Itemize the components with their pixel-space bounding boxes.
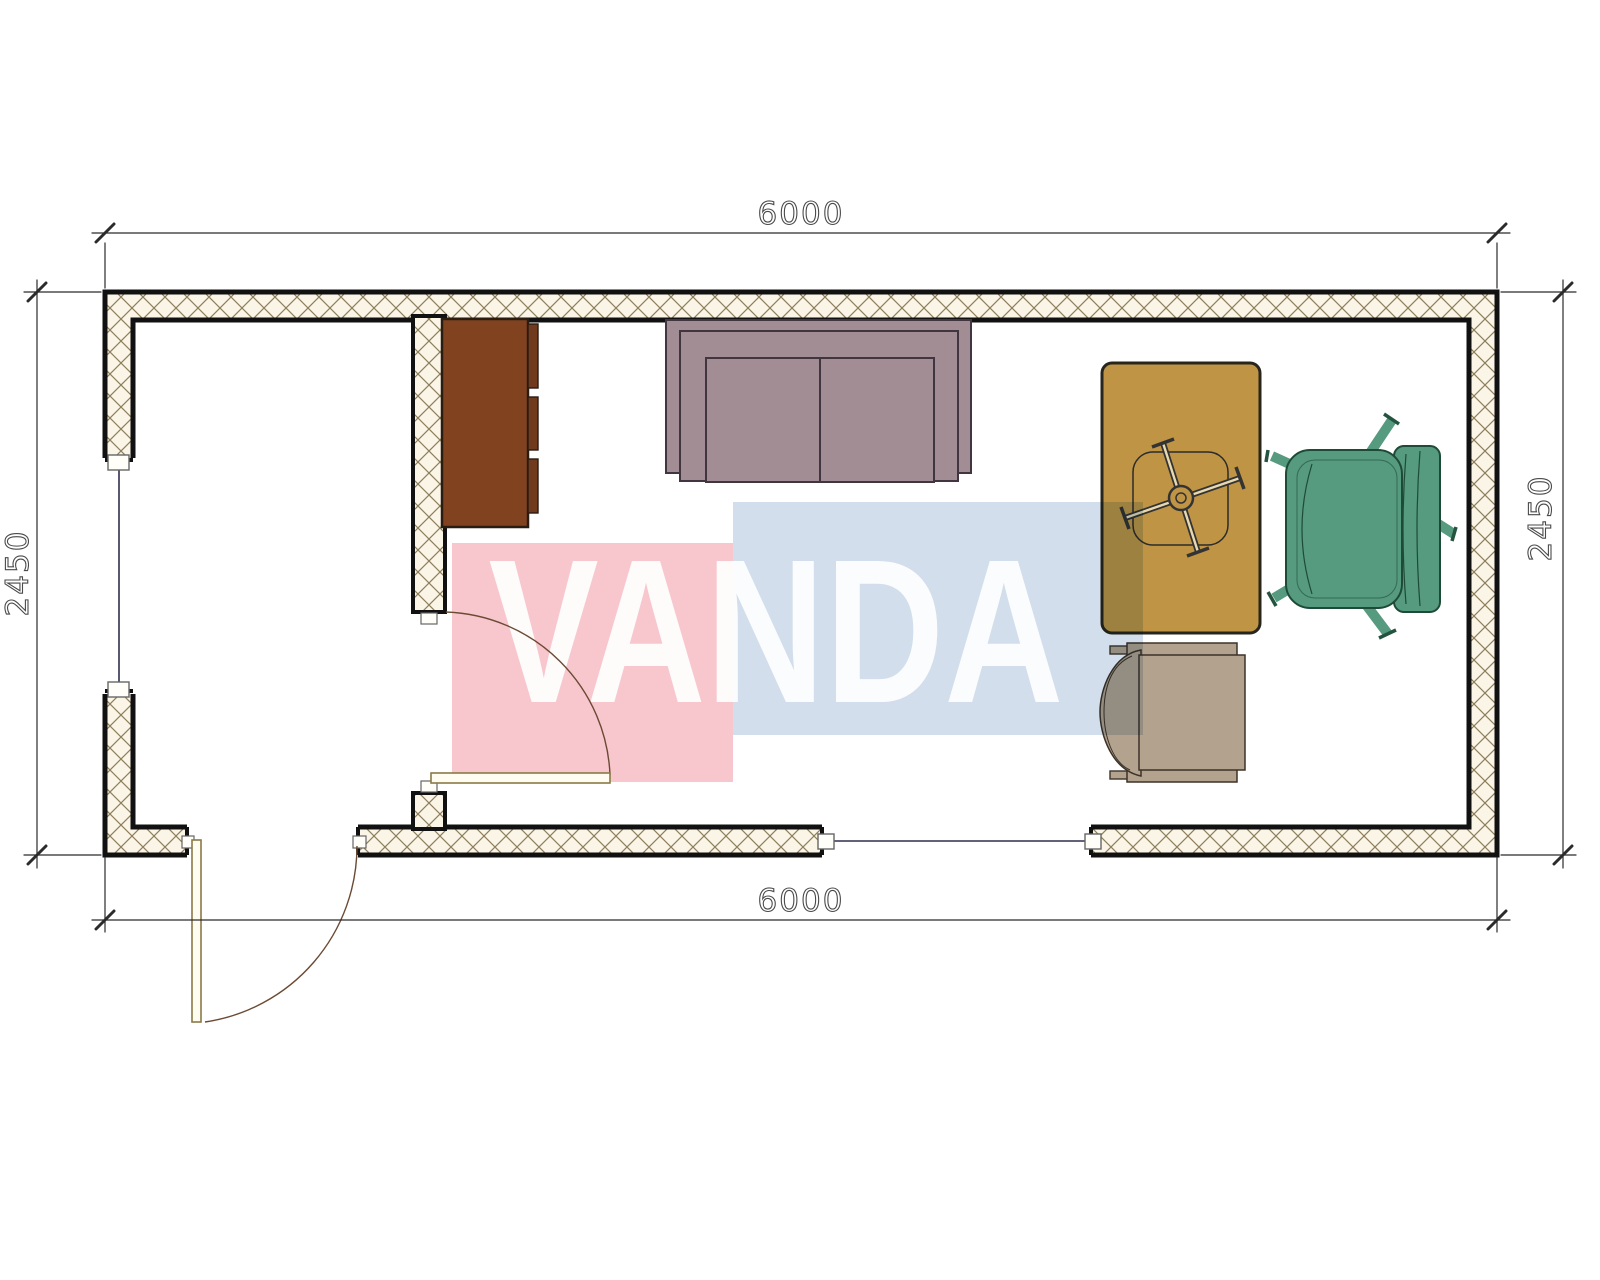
task-chair-hub xyxy=(1169,486,1193,510)
interior-door-jamb-top xyxy=(421,613,437,624)
left-window-opening xyxy=(98,458,136,694)
dimension-right-lines xyxy=(1501,280,1576,868)
dimension-right-label: 2450 xyxy=(1523,475,1559,562)
side-chair-seat xyxy=(1139,655,1245,770)
floor-plan-canvas: VANDA 6000 6000 2450 245 xyxy=(0,0,1600,1280)
dimension-top-label: 6000 xyxy=(758,196,845,232)
cabinet-door-2 xyxy=(528,397,538,450)
interior-door-leaf xyxy=(431,773,610,783)
sofa xyxy=(666,320,971,482)
left-window-sill-bottom xyxy=(108,682,129,697)
watermark: VANDA xyxy=(452,502,1143,782)
entrance-door-swing-arc xyxy=(205,846,357,1022)
left-window-sill-top xyxy=(108,455,129,470)
partition-wall xyxy=(413,316,445,612)
bottom-window-sill-right xyxy=(1085,834,1101,849)
dimension-bottom-label: 6000 xyxy=(758,883,845,919)
floor-plan-drawing: VANDA 6000 6000 2450 245 xyxy=(0,0,1600,1280)
dimension-right: 2450 xyxy=(1501,280,1576,868)
dimension-top: 6000 xyxy=(92,196,1510,288)
dimension-top-lines xyxy=(92,233,1510,288)
dimension-left-label: 2450 xyxy=(0,530,36,617)
side-chair-arm-foot-bottom xyxy=(1110,771,1128,779)
wardrobe-cabinet xyxy=(442,319,538,527)
entrance-door-opening xyxy=(187,820,358,862)
entrance-door-leaf xyxy=(192,840,201,1022)
dimension-bottom: 6000 xyxy=(92,858,1510,932)
cabinet-door-1 xyxy=(528,324,538,388)
bottom-window-sill-left xyxy=(818,834,834,849)
entrance-door-jamb-right xyxy=(353,836,366,848)
cabinet-door-3 xyxy=(528,459,538,513)
dimension-left: 2450 xyxy=(0,280,101,868)
cabinet-body xyxy=(442,319,528,527)
partition-wall-stub xyxy=(413,793,445,829)
green-armchair xyxy=(1266,414,1456,638)
armchair-seat xyxy=(1286,450,1402,608)
watermark-text: VANDA xyxy=(489,517,1064,746)
